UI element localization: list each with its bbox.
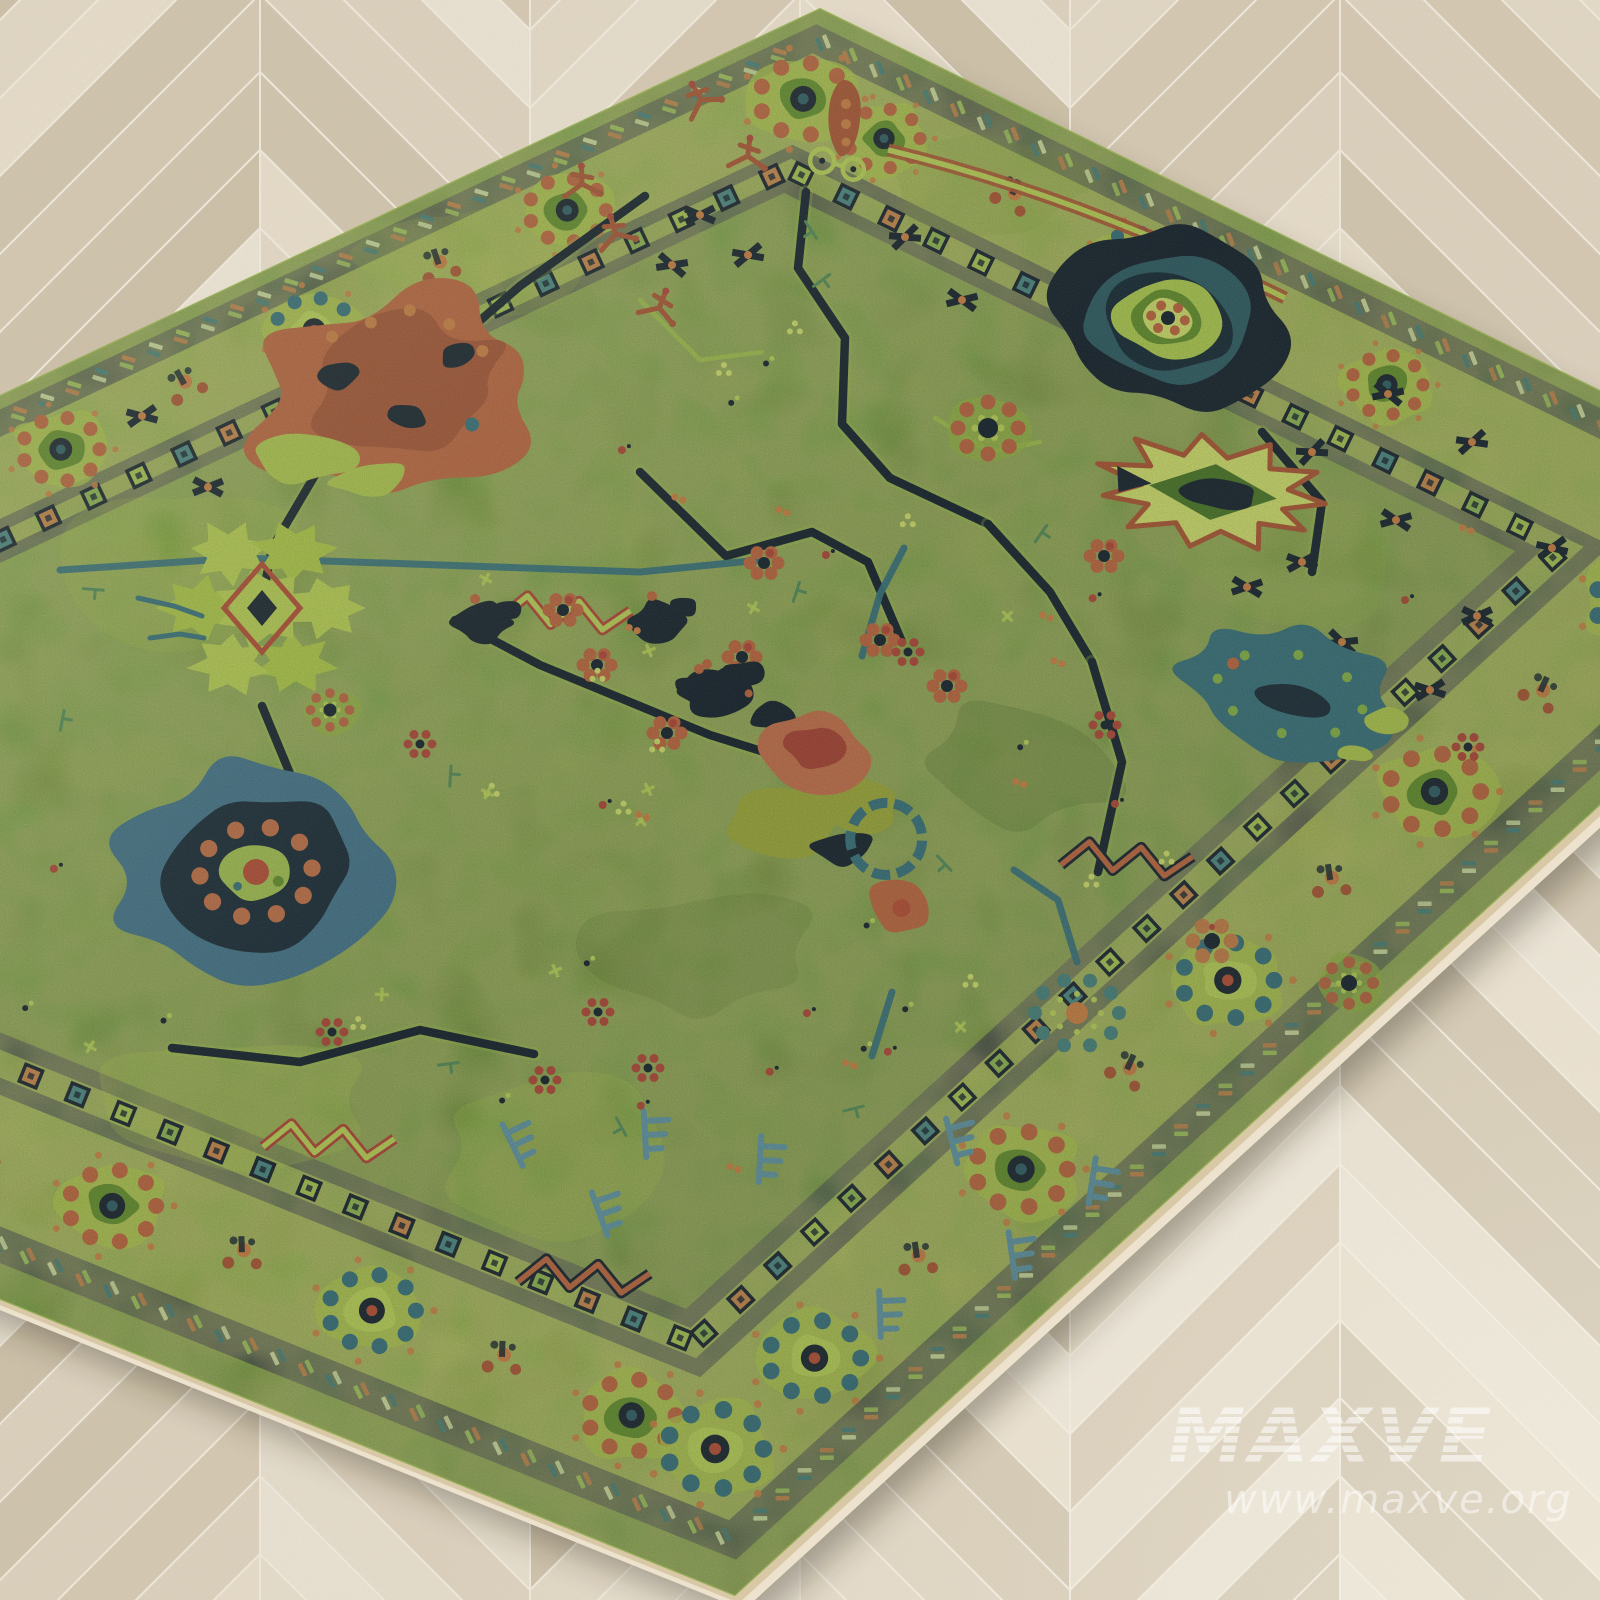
rug-scene <box>0 0 1600 1600</box>
product-render: MAXVE www.maxve.org <box>0 0 1600 1600</box>
